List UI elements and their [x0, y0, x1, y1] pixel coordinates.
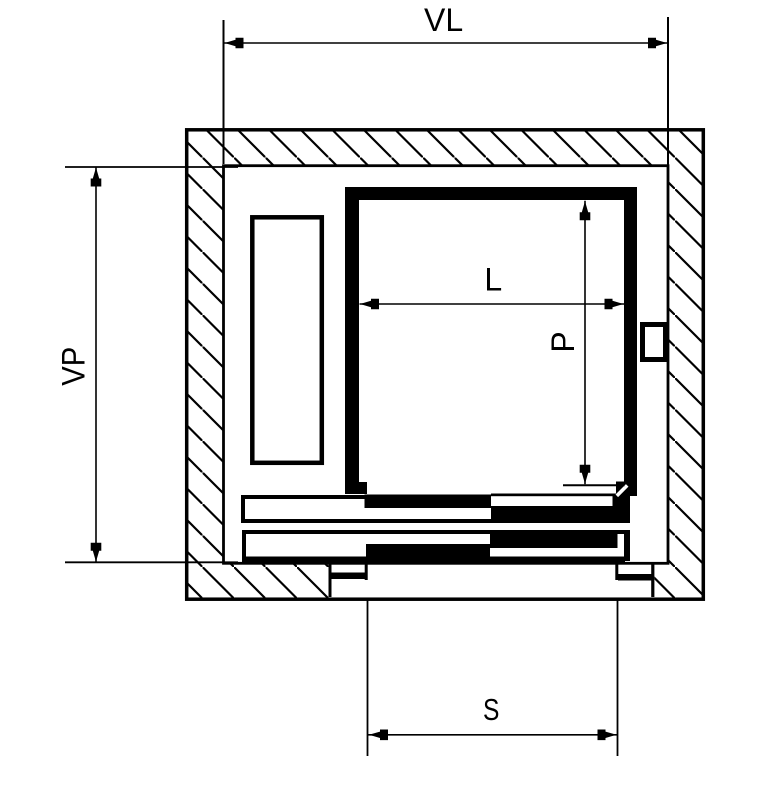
svg-text:VP: VP [55, 347, 91, 386]
svg-text:P: P [545, 331, 581, 352]
svg-text:S: S [483, 692, 499, 727]
svg-text:L: L [484, 262, 502, 298]
svg-text:VL: VL [424, 2, 463, 38]
